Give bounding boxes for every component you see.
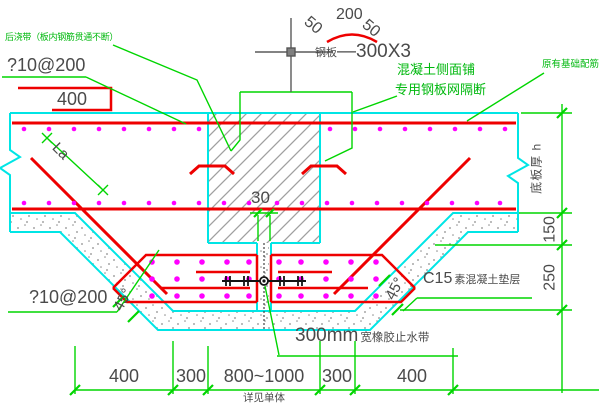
side-face-note-line2: 专用钢板网隔断 (395, 83, 486, 97)
leader-side-note (353, 96, 397, 112)
steel-plate-prefix: 钢板 (315, 48, 337, 62)
c15-cushion-label: C15素混凝土垫层 (423, 271, 520, 288)
steel-plate-size: —300X3 (337, 42, 411, 62)
dim-150-label: 150 (543, 209, 560, 249)
la-dimension (42, 133, 108, 195)
slab-thickness-label: 底板厚 h (531, 132, 544, 204)
waterstop-text: 宽橡胶止水带 (358, 332, 429, 346)
bottom-dim-5: 400 (367, 367, 457, 386)
bottom-rebar-label: ?10@200 (29, 288, 107, 307)
dim-30-label: 30 (251, 189, 270, 207)
c15-grade: C15 (423, 271, 452, 288)
dim-400-box-label: 400 (57, 90, 87, 109)
leader-c15 (403, 298, 532, 311)
see-individual-note: 详见单体 (224, 393, 304, 404)
waterstop-label: 300mm宽橡胶止水带 (295, 326, 429, 346)
postcast-strip-note: 后浇带（板内钢筋贯通不断） (5, 33, 118, 42)
side-face-note-line1: 混凝土侧面铺 (397, 63, 475, 77)
waterstop-width: 300mm (295, 326, 358, 346)
dim-200-label: 200 (336, 7, 363, 24)
c15-text: 素混凝土垫层 (452, 275, 520, 288)
top-rebar-label: ?10@200 (7, 56, 85, 75)
detail-drawing-linework (0, 0, 600, 413)
column-hatch (209, 114, 319, 243)
cad-drawing-canvas[interactable]: 后浇带（板内钢筋贯通不断） ?10@200 400 50 200 50 钢板—3… (0, 0, 600, 413)
dim-250-label: 250 (543, 257, 560, 297)
leader-top-rebar (2, 77, 186, 124)
steel-plate-label: 钢板—300X3 (315, 42, 411, 62)
waterstop-symbol (222, 276, 306, 286)
existing-foundation-rebar-label: 原有基础配筋 (542, 60, 599, 70)
